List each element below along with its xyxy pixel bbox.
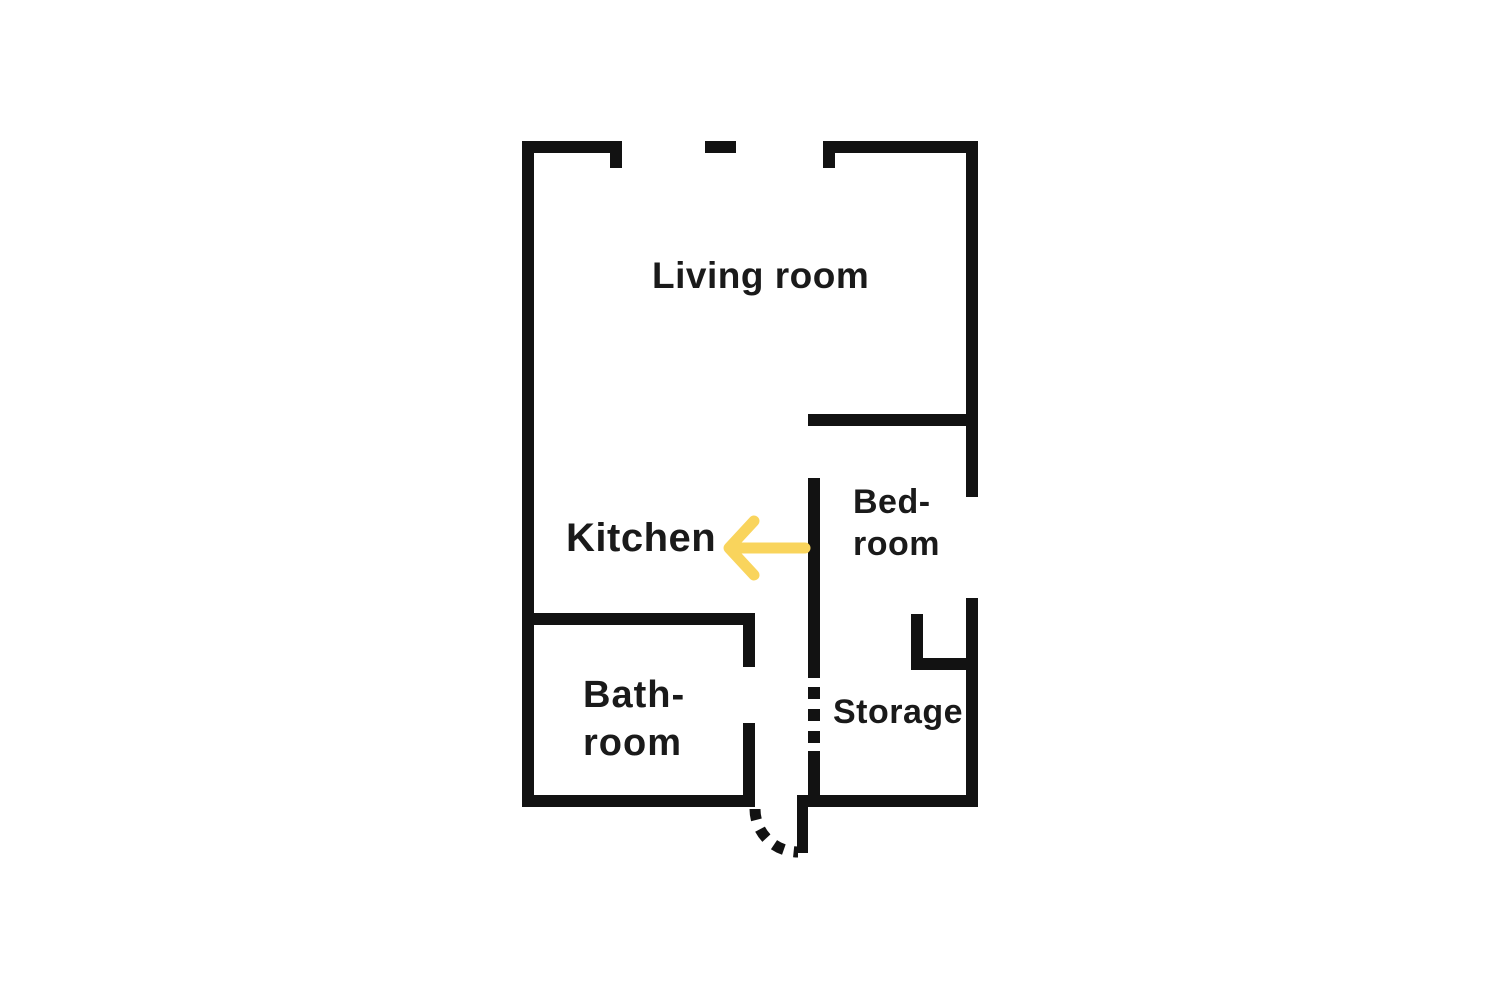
wall-bedroom-left-upper bbox=[808, 478, 820, 678]
bathroom-label-line1: Bath- bbox=[583, 671, 685, 719]
wall-bottom-right bbox=[797, 795, 978, 807]
wall-right-upper bbox=[966, 141, 978, 497]
wall-bedroom-left-lower bbox=[808, 751, 820, 807]
arrow-left-icon bbox=[729, 521, 805, 575]
wall-top-right bbox=[823, 141, 978, 153]
wall-top-left bbox=[522, 141, 622, 153]
entry-door-swing-arc bbox=[755, 809, 798, 852]
bedroom-label: Bed- room bbox=[853, 481, 940, 565]
wall-bedroom-left-dash-1 bbox=[808, 687, 820, 699]
wall-right-lower bbox=[966, 598, 978, 807]
bedroom-label-line2: room bbox=[853, 523, 940, 565]
bathroom-label-line2: room bbox=[583, 719, 685, 767]
wall-bedroom-top bbox=[808, 414, 978, 426]
living-room-label: Living room bbox=[652, 257, 869, 294]
wall-bottom-left bbox=[522, 795, 755, 807]
kitchen-label: Kitchen bbox=[566, 518, 716, 558]
storage-label: Storage bbox=[833, 695, 963, 729]
wall-bedroom-left-dash-3 bbox=[808, 731, 820, 743]
wall-entry-door-jamb bbox=[797, 795, 808, 853]
wall-storage-step-horizontal bbox=[911, 658, 978, 670]
wall-bedroom-left-dash-2 bbox=[808, 709, 820, 721]
wall-left bbox=[522, 141, 534, 807]
bathroom-label: Bath- room bbox=[583, 671, 685, 767]
wall-top-left-stub bbox=[610, 141, 622, 168]
floor-plan: Living room Kitchen Bed- room Bath- room… bbox=[0, 0, 1500, 1000]
floor-plan-drawing bbox=[0, 0, 1500, 1000]
wall-bathroom-right-lower bbox=[743, 723, 755, 807]
wall-bathroom-right-upper bbox=[743, 613, 755, 667]
bedroom-label-line1: Bed- bbox=[853, 481, 940, 523]
wall-top-middle bbox=[705, 141, 736, 153]
wall-bathroom-top bbox=[522, 613, 755, 625]
